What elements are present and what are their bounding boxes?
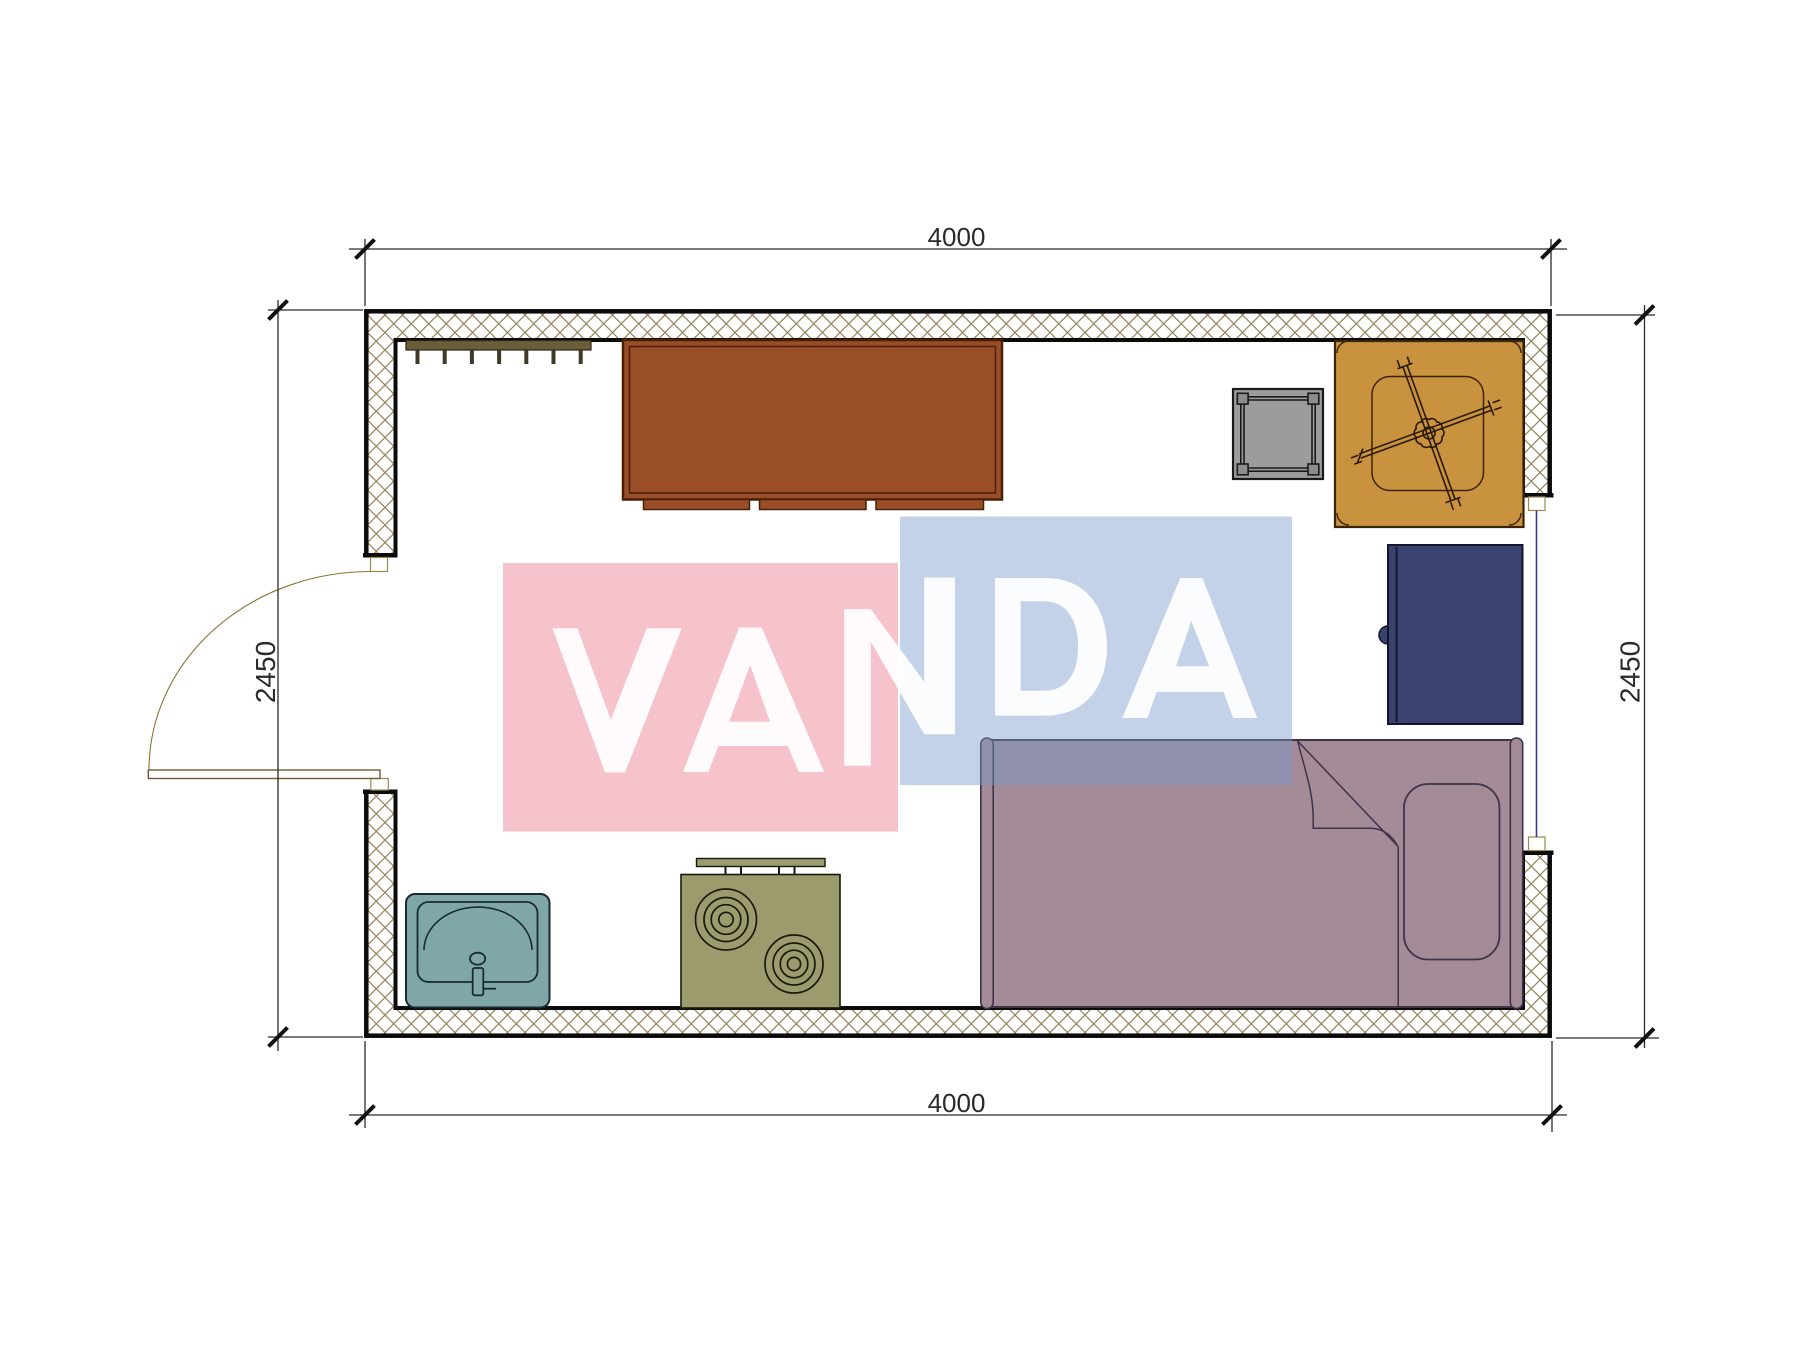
svg-text:2450: 2450 xyxy=(250,641,281,703)
svg-text:4000: 4000 xyxy=(928,1088,986,1118)
svg-text:4000: 4000 xyxy=(928,222,986,252)
svg-text:2450: 2450 xyxy=(1615,641,1646,703)
